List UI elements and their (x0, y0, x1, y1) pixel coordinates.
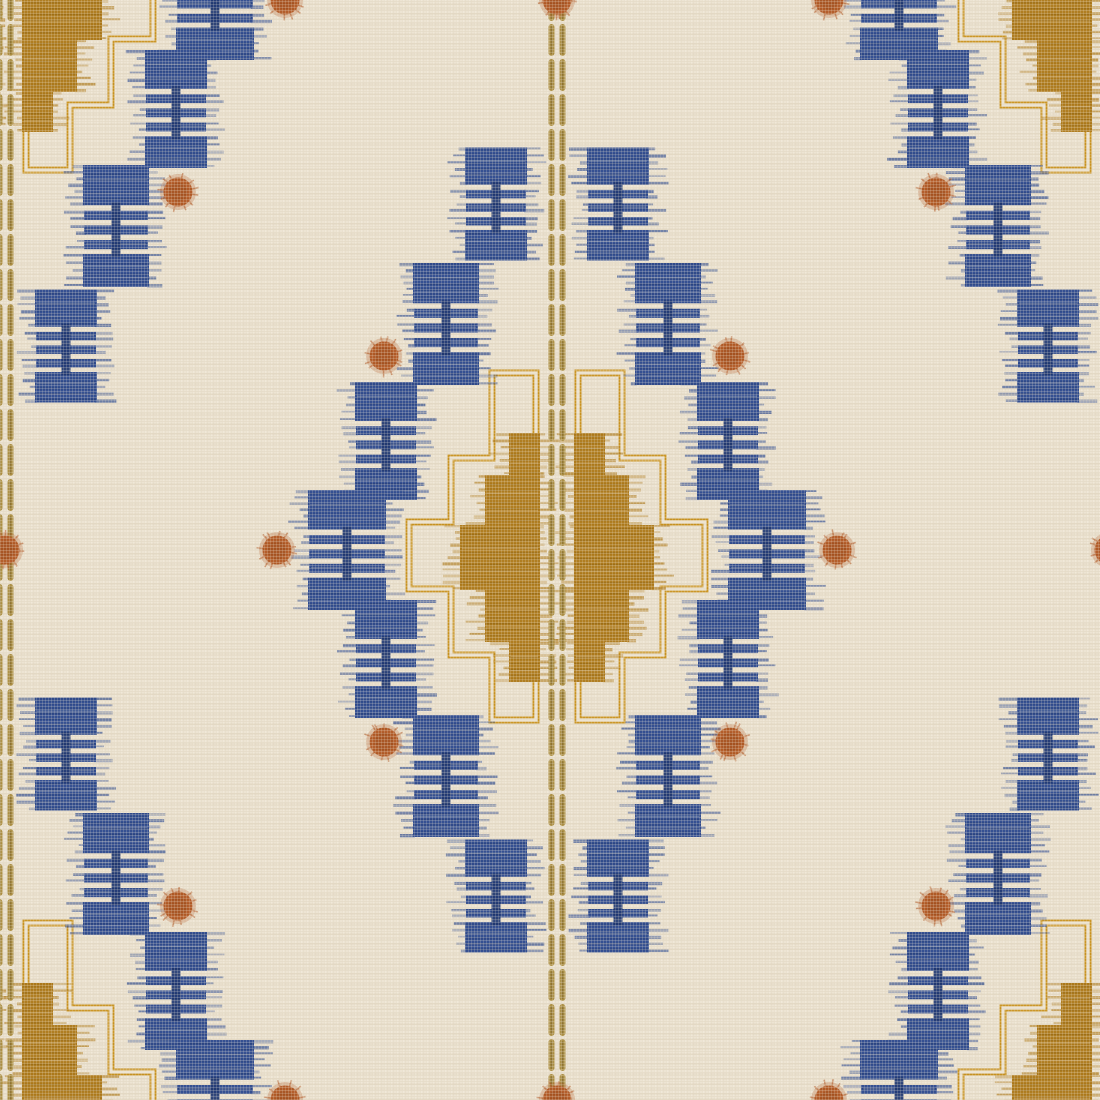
diamond-motif (840, 698, 1100, 1100)
ikat-block (678, 600, 779, 718)
diamond-motif (0, 0, 272, 403)
ikat-block (337, 382, 437, 500)
diamond-motif (842, 0, 1100, 403)
ikat-block (709, 490, 826, 610)
ikat-block (127, 932, 227, 1050)
ikat-block (999, 698, 1099, 811)
ikat-block (17, 290, 117, 403)
ikat-block (64, 813, 169, 935)
pompom-dot (915, 886, 955, 926)
pompom-dot (710, 336, 750, 375)
ikat-block (945, 813, 1050, 935)
pompom-dot (157, 887, 198, 927)
diamond-motif (0, 698, 273, 1100)
ikat-block (888, 932, 986, 1050)
ikat-block (617, 263, 719, 385)
ikat-block (569, 840, 669, 953)
ikat-block (393, 715, 499, 837)
pompom-dot (364, 723, 403, 761)
ikat-block (945, 165, 1049, 287)
ikat-block (616, 715, 721, 837)
pompom-dot (810, 1079, 850, 1100)
pompom-dot (817, 529, 856, 569)
ikat-block (678, 382, 775, 500)
textile-pattern (0, 0, 1100, 1100)
pompom-dot (157, 173, 198, 212)
ikat-block (447, 148, 546, 261)
ikat-block (887, 50, 987, 168)
ikat-pattern-canvas (0, 0, 1100, 1100)
ikat-block (335, 600, 436, 718)
pompom-dot (538, 0, 577, 20)
ikat-block (16, 698, 116, 811)
ikat-block (126, 50, 225, 168)
ikat-block (63, 165, 168, 287)
ikat-block (997, 290, 1098, 403)
ikat-block (396, 263, 498, 385)
ikat-block (568, 148, 668, 261)
ikat-block (446, 840, 547, 953)
pompom-dot (810, 0, 850, 20)
pompom-dot (265, 0, 305, 20)
diamond-motif (288, 148, 826, 953)
pompom-dot (256, 531, 296, 569)
pompom-dot (1090, 530, 1100, 569)
pompom-dot (0, 530, 24, 570)
ikat-block (288, 490, 405, 610)
ikat-block (156, 1040, 273, 1100)
pompom-dot (537, 1081, 578, 1100)
pompom-dot (365, 336, 403, 377)
pompom-dot (264, 1080, 306, 1100)
